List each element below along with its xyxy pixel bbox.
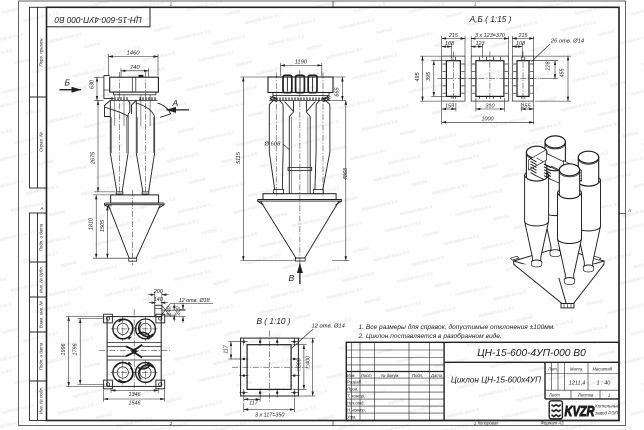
svg-text:117: 117 — [249, 400, 259, 406]
svg-text:А: А — [39, 206, 43, 211]
svg-text:215: 215 — [448, 33, 459, 39]
svg-text:155: 155 — [445, 103, 455, 109]
svg-text:Лит.: Лит. — [547, 367, 558, 372]
svg-text:Лист: Лист — [360, 373, 372, 378]
svg-text:А,Б ( 1:15 ): А,Б ( 1:15 ) — [469, 14, 512, 24]
svg-text:ЦН-15-600-4УП-000 В0: ЦН-15-600-4УП-000 В0 — [54, 15, 142, 24]
svg-text:123: 123 — [476, 41, 485, 47]
svg-text:Инв. № дубл.: Инв. № дубл. — [39, 266, 44, 293]
svg-text:1. Все размеры для справок, д: 1. Все размеры для справок, допустимые о… — [359, 323, 556, 331]
svg-text:200: 200 — [153, 289, 163, 295]
svg-text:2: 2 — [169, 2, 173, 7]
svg-text:495: 495 — [415, 72, 421, 82]
svg-text:Справ. №: Справ. № — [39, 132, 44, 152]
svg-text:1190: 1190 — [295, 59, 308, 65]
svg-text:Подп.: Подп. — [412, 373, 423, 378]
svg-text:Котельный: Котельный — [595, 403, 620, 409]
svg-text:Копировал: Копировал — [478, 421, 499, 426]
svg-text:228: 228 — [546, 62, 552, 72]
svg-text:1000: 1000 — [482, 117, 494, 123]
svg-text:108: 108 — [445, 41, 454, 47]
svg-text:□300: □300 — [297, 358, 303, 370]
svg-text:Пров.: Пров. — [347, 387, 358, 392]
svg-text:Формат А3: Формат А3 — [541, 421, 565, 426]
svg-text:12 отв. Ø18: 12 отв. Ø18 — [179, 298, 210, 304]
svg-text:Масштаб: Масштаб — [593, 367, 613, 372]
svg-text:Циклон ЦН-15-600х4УП: Циклон ЦН-15-600х4УП — [451, 375, 541, 384]
svg-text:1810: 1810 — [89, 217, 95, 230]
svg-text:ЦН-15-600-4УП-000 В0: ЦН-15-600-4УП-000 В0 — [477, 348, 586, 359]
svg-text:1346: 1346 — [129, 392, 141, 398]
svg-text:1996: 1996 — [61, 344, 67, 356]
svg-text:1: 1 — [608, 393, 610, 398]
svg-text:140: 140 — [167, 307, 173, 316]
svg-text:Ø 608: Ø 608 — [264, 142, 282, 148]
svg-text:630: 630 — [89, 79, 95, 89]
svg-text:Взам. инв. №: Взам. инв. № — [39, 301, 44, 328]
svg-text:Лист: Лист — [548, 393, 560, 398]
svg-text:740: 740 — [130, 65, 140, 71]
svg-text:455: 455 — [559, 68, 565, 78]
svg-text:140: 140 — [154, 297, 163, 303]
svg-text:Подп. и дата: Подп. и дата — [39, 223, 44, 251]
svg-text:Перв. примен.: Перв. примен. — [39, 37, 44, 66]
svg-text:Подп. и дата: Подп. и дата — [39, 342, 44, 370]
svg-text:KVZR: KVZR — [565, 404, 595, 420]
svg-text:1460: 1460 — [127, 51, 141, 57]
svg-text:200: 200 — [175, 307, 181, 317]
svg-text:Нач.отд.: Нач.отд. — [347, 401, 365, 406]
svg-text:завод РЭП: завод РЭП — [594, 411, 619, 416]
svg-text:108: 108 — [516, 41, 525, 47]
svg-text:155: 155 — [522, 103, 532, 109]
svg-text:26 отв. Ø14: 26 отв. Ø14 — [550, 39, 584, 45]
svg-text:В: В — [289, 273, 295, 283]
svg-text:1546: 1546 — [129, 400, 141, 406]
svg-text:1505: 1505 — [100, 219, 106, 232]
svg-text:215: 215 — [518, 33, 529, 39]
svg-text:Инв. № подл.: Инв. № подл. — [39, 387, 44, 414]
svg-text:Разраб.: Разраб. — [347, 380, 362, 385]
svg-text:Т. контр.: Т. контр. — [347, 394, 365, 399]
svg-text:1211,4: 1211,4 — [569, 380, 585, 386]
svg-text:1 : 40: 1 : 40 — [597, 380, 612, 386]
svg-text:117: 117 — [223, 344, 229, 354]
svg-text:А: А — [627, 208, 631, 213]
svg-text:5115: 5115 — [236, 151, 242, 164]
svg-text:□400: □400 — [305, 356, 311, 368]
svg-text:А: А — [172, 98, 179, 108]
svg-text:Б: Б — [65, 78, 71, 88]
svg-text:1796: 1796 — [73, 344, 79, 356]
svg-text:2675: 2675 — [90, 151, 96, 165]
svg-text:4868: 4868 — [343, 167, 349, 180]
svg-text:3 х 123=370: 3 х 123=370 — [475, 33, 505, 39]
svg-text:Листов: Листов — [577, 393, 594, 398]
svg-text:3 х 117=350: 3 х 117=350 — [255, 412, 284, 418]
svg-text:310: 310 — [486, 103, 495, 109]
svg-text:Дата: Дата — [430, 373, 443, 378]
svg-text:№ докум.: № докум. — [381, 373, 399, 378]
svg-text:12 отв. Ø14: 12 отв. Ø14 — [312, 324, 345, 330]
svg-text:Изм.: Изм. — [347, 373, 356, 378]
svg-text:Масса: Масса — [570, 367, 583, 372]
svg-text:665: 665 — [335, 86, 341, 96]
svg-text:2: 2 — [169, 421, 173, 426]
svg-text:Н. контр.: Н. контр. — [347, 408, 366, 413]
svg-text:2. Циклон поставляется в разо: 2. Циклон поставляется в разобранном вид… — [358, 332, 502, 340]
svg-text:395: 395 — [426, 71, 432, 81]
svg-text:В ( 1:10 ): В ( 1:10 ) — [256, 316, 290, 326]
svg-text:Утв.: Утв. — [347, 414, 357, 419]
